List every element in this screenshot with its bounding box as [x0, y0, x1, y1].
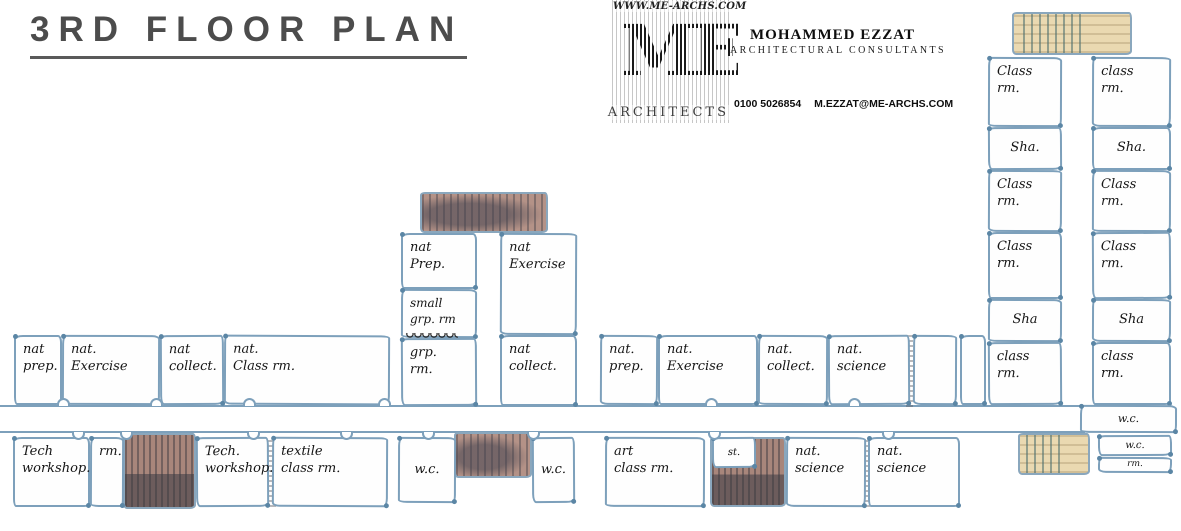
room-rm-west-label: rm. — [99, 444, 119, 461]
room-class-rm-e8: class rm. — [1092, 342, 1171, 405]
room-class-rm-e8-label: class rm. — [1101, 349, 1166, 383]
room-wc-east-2-label: w.c. — [1125, 439, 1144, 452]
stairs-southeast — [1018, 433, 1090, 475]
room-tech-workshop-west: Tech workshop. — [13, 437, 90, 507]
room-wc-center-east: w.c. — [532, 437, 575, 503]
room-nat-prep-west: nat prep. — [14, 335, 62, 405]
room-class-rm-e5-label: class rm. — [1101, 64, 1166, 98]
room-class-rm-e7: Class rm. — [1092, 232, 1171, 299]
room-unlabeled-1 — [913, 335, 957, 405]
stairs-center-north — [420, 192, 548, 233]
room-class-rm-e5: class rm. — [1092, 57, 1171, 127]
room-nat-exercise-tower: nat Exercise — [500, 233, 577, 335]
room-nat-exercise-tower-label: nat Exercise — [509, 240, 572, 274]
room-textile-class-rm: textile class rm. — [272, 437, 388, 508]
room-nat-collect-west: nat collect. — [160, 335, 224, 405]
room-tech-workshop-mid-label: Tech. workshop. — [205, 444, 264, 478]
room-rm-east-label: rm. — [1127, 459, 1143, 471]
room-sha-e2-label: Sha — [1012, 312, 1037, 329]
room-class-rm-e6: Class rm. — [1092, 170, 1171, 232]
room-nat-collect-tower-label: nat collect. — [509, 342, 572, 376]
room-wc-east-1-label: w.c. — [1118, 412, 1139, 426]
room-nat-collect-mid-label: nat. collect. — [767, 342, 823, 376]
door-arc — [243, 398, 256, 406]
room-tech-workshop-west-label: Tech workshop. — [22, 444, 85, 478]
room-sha-e1: Sha. — [988, 127, 1062, 170]
room-wc-center-west-label: w.c. — [414, 462, 439, 479]
room-small-grp-rm: small grp. rm — [401, 289, 477, 338]
room-nat-science-south-1: nat. science — [786, 437, 866, 507]
room-nat-science-south-2-label: nat. science — [877, 444, 955, 478]
main-corridor — [0, 405, 1085, 433]
room-sha-e2: Sha — [988, 299, 1062, 342]
door-arc — [57, 398, 70, 406]
floor-plan-drawing: nat prep.nat. Exercisenat collect.nat. C… — [0, 0, 1181, 531]
room-class-rm-e4-label: class rm. — [997, 349, 1057, 383]
room-nat-science-south-2: nat. science — [868, 437, 960, 507]
room-rm-east: rm. — [1098, 457, 1172, 473]
room-sha-e3: Sha. — [1092, 127, 1171, 170]
room-nat-prep-west-label: nat prep. — [23, 342, 57, 376]
room-nat-exercise-west-label: nat. Exercise — [71, 342, 155, 376]
room-art-class-rm-label: art class rm. — [614, 444, 700, 478]
room-nat-class-rm-west-label: nat. Class rm. — [233, 342, 385, 376]
room-sha-e4: Sha — [1092, 299, 1171, 342]
room-wc-center-east-label: w.c. — [541, 461, 566, 478]
room-class-rm-e1-label: Class rm. — [997, 64, 1057, 98]
room-wc-center-west: w.c. — [398, 437, 456, 503]
door-arc — [848, 398, 861, 406]
room-textile-class-rm-label: textile class rm. — [281, 444, 383, 478]
room-nat-exercise-mid-label: nat. Exercise — [667, 342, 753, 376]
room-nat-collect-west-label: nat collect. — [169, 342, 219, 376]
room-nat-science-mid-label: nat. science — [837, 342, 905, 376]
room-class-rm-e7-label: Class rm. — [1101, 239, 1166, 273]
room-nat-prep-tower: nat Prep. — [401, 233, 477, 289]
room-rm-west: rm. — [90, 437, 124, 507]
room-class-rm-e4: class rm. — [988, 342, 1062, 405]
room-class-rm-e3: Class rm. — [988, 232, 1062, 299]
room-class-rm-e2-label: Class rm. — [997, 177, 1057, 211]
room-nat-prep-tower-label: nat Prep. — [410, 240, 472, 274]
room-nat-prep-mid: nat. prep. — [600, 335, 658, 405]
stairs-northeast — [1012, 12, 1132, 55]
room-st: st. — [712, 437, 756, 468]
room-grp-rm-label: grp. rm. — [410, 345, 472, 379]
room-nat-exercise-west: nat. Exercise — [62, 335, 160, 405]
door-arc — [150, 398, 163, 406]
room-class-rm-e2: Class rm. — [988, 170, 1062, 232]
room-nat-class-rm-west: nat. Class rm. — [224, 335, 390, 406]
room-st-label: st. — [728, 446, 740, 459]
room-nat-exercise-mid: nat. Exercise — [658, 335, 758, 405]
room-class-rm-e1: Class rm. — [988, 57, 1062, 127]
room-class-rm-e3-label: Class rm. — [997, 239, 1057, 273]
room-sha-e3-label: Sha. — [1117, 140, 1146, 157]
room-art-class-rm: art class rm. — [605, 437, 705, 507]
stairs-center-south — [454, 432, 532, 478]
floor-plan-sheet: 3RD FLOOR PLAN WWW.ME-ARCHS.COM ME ARCHI… — [0, 0, 1181, 531]
room-nat-collect-tower: nat collect. — [500, 335, 577, 406]
room-grp-rm: grp. rm. — [401, 338, 477, 406]
room-small-grp-rm-label: small grp. rm — [410, 296, 472, 327]
room-unlabeled-2 — [960, 335, 986, 405]
stairs-southwest — [123, 433, 196, 509]
room-nat-prep-mid-label: nat. prep. — [609, 342, 653, 376]
room-sha-e4-label: Sha — [1119, 312, 1144, 329]
room-wc-east-1: w.c. — [1080, 405, 1177, 433]
room-tech-workshop-mid: Tech. workshop. — [196, 437, 269, 507]
room-class-rm-e6-label: Class rm. — [1101, 177, 1166, 211]
room-sha-e1-label: Sha. — [1010, 140, 1039, 157]
room-nat-science-mid: nat. science — [828, 335, 910, 405]
room-wc-east-2: w.c. — [1098, 435, 1172, 456]
door-arc — [705, 398, 718, 406]
door-arc — [378, 398, 391, 406]
room-nat-collect-mid: nat. collect. — [758, 335, 828, 405]
room-nat-science-south-1-label: nat. science — [795, 444, 861, 478]
